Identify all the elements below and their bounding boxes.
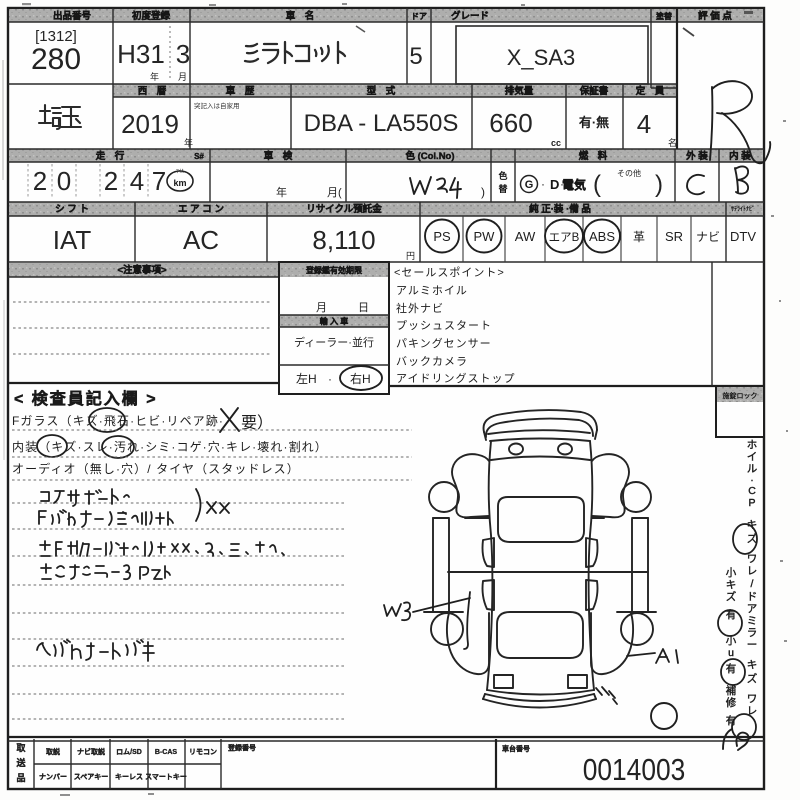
svg-text:4: 4 <box>130 166 144 196</box>
svg-text:ズ: ズ <box>747 672 758 685</box>
svg-text:日: 日 <box>358 302 369 314</box>
svg-text:車台番号: 車台番号 <box>502 744 530 753</box>
svg-text:0014003: 0014003 <box>583 753 686 787</box>
svg-text:ド: ド <box>747 591 758 603</box>
svg-text:有: 有 <box>726 714 737 727</box>
svg-text:有: 有 <box>726 662 737 675</box>
svg-text:名: 名 <box>668 137 677 148</box>
svg-text:キ: キ <box>726 579 737 591</box>
svg-text:): ) <box>481 185 485 199</box>
svg-text:品: 品 <box>16 773 25 783</box>
svg-text:ズ: ズ <box>726 590 737 603</box>
svg-text:純 正·装 ·備 品: 純 正·装 ·備 品 <box>529 203 591 215</box>
svg-text:PS: PS <box>433 229 451 244</box>
svg-text:有·無: 有·無 <box>579 115 609 130</box>
svg-text:突記入は自家用: 突記入は自家用 <box>194 101 240 110</box>
svg-text:要）: 要） <box>241 414 273 432</box>
svg-text:型 式: 型 式 <box>367 85 396 97</box>
svg-text:AC: AC <box>183 225 219 255</box>
svg-text:補: 補 <box>726 684 737 697</box>
svg-text:出品番号: 出品番号 <box>53 10 92 22</box>
svg-text:アルミホイル: アルミホイル <box>396 284 468 297</box>
svg-text:パキングセンサー: パキングセンサー <box>396 336 492 350</box>
svg-text:右H: 右H <box>350 371 371 386</box>
svg-text:車 検: 車 検 <box>264 150 293 162</box>
svg-text:8,110: 8,110 <box>312 225 375 255</box>
svg-text:4: 4 <box>637 109 651 139</box>
svg-text:キ: キ <box>747 659 758 671</box>
svg-text:ラ: ラ <box>747 627 758 639</box>
svg-text:X_SA3: X_SA3 <box>507 45 576 70</box>
svg-text:ワ: ワ <box>747 693 758 705</box>
svg-text:登録番号: 登録番号 <box>227 743 256 752</box>
svg-text:送: 送 <box>15 757 26 768</box>
svg-text:バックカメラ: バックカメラ <box>396 355 468 368</box>
svg-text:0: 0 <box>57 166 71 196</box>
svg-text:PW: PW <box>474 229 496 244</box>
svg-text:修: 修 <box>726 696 737 709</box>
svg-text:ナビ: ナビ <box>696 230 720 244</box>
svg-text:スマートキー: スマートキー <box>145 773 187 781</box>
svg-text:円: 円 <box>406 251 415 261</box>
svg-text:キーレス: キーレス <box>115 773 143 781</box>
svg-text:S#: S# <box>194 152 204 161</box>
svg-text:2: 2 <box>104 166 118 196</box>
svg-text:ﾏｲﾙ: ﾏｲﾙ <box>176 168 185 175</box>
svg-text:輸 入 車: 輸 入 車 <box>320 316 348 326</box>
svg-text:取: 取 <box>16 743 26 753</box>
svg-text:月(: 月( <box>327 187 342 199</box>
svg-text:施錠ロック: 施錠ロック <box>723 391 758 400</box>
svg-text:グレード: グレード <box>451 10 489 22</box>
svg-text:280: 280 <box>31 43 81 76</box>
svg-text:保証書: 保証書 <box>579 85 609 97</box>
svg-text:スペアキー: スペアキー <box>74 773 109 781</box>
svg-text:7: 7 <box>152 166 166 196</box>
svg-text:その他: その他 <box>617 168 641 178</box>
svg-text:km: km <box>173 178 186 188</box>
svg-text:ミ: ミ <box>747 615 758 627</box>
svg-text:月: 月 <box>316 302 327 314</box>
svg-text:IAT: IAT <box>53 225 92 255</box>
svg-text:ナンバー: ナンバー <box>39 773 67 781</box>
svg-text:ディーラー·並行: ディーラー·並行 <box>294 335 374 349</box>
svg-text:ABS: ABS <box>589 229 615 244</box>
svg-text:年: 年 <box>276 185 287 199</box>
svg-text:cc: cc <box>551 138 561 148</box>
svg-text:P: P <box>748 497 755 509</box>
svg-text:DTV: DTV <box>730 229 756 244</box>
svg-text:(: ( <box>593 171 601 198</box>
svg-text:·: · <box>328 372 332 386</box>
svg-text:アイドリングストップ: アイドリングストップ <box>396 371 515 385</box>
svg-text:小: 小 <box>726 567 737 579</box>
svg-text:C: C <box>748 485 756 497</box>
svg-text:プッシュスタート: プッシュスタート <box>396 319 492 332</box>
svg-text:<注意事項>: <注意事項> <box>117 264 167 276</box>
svg-text:評 価 点: 評 価 点 <box>698 10 732 22</box>
svg-text:エアB: エアB <box>549 232 580 244</box>
svg-text:3: 3 <box>176 39 190 69</box>
svg-text:オーディオ（無し·穴）/ タイヤ（スタッドレス）: オーディオ（無し·穴）/ タイヤ（スタッドレス） <box>12 461 300 476</box>
svg-text:社外ナビ: 社外ナビ <box>396 301 444 315</box>
svg-text:外 装: 外 装 <box>685 150 708 162</box>
svg-text:ドア: ドア <box>411 12 427 21</box>
svg-text:色: 色 <box>498 170 507 181</box>
svg-text:5: 5 <box>409 43 422 70</box>
svg-text:走 行: 走 行 <box>95 150 125 162</box>
svg-text:レ: レ <box>747 565 758 577</box>
svg-text:G: G <box>525 179 534 191</box>
svg-text:年: 年 <box>150 71 159 82</box>
svg-text:<セールスポイント>: <セールスポイント> <box>394 266 505 279</box>
svg-text:排気量: 排気量 <box>505 85 534 97</box>
svg-text:660: 660 <box>489 108 532 138</box>
svg-text:DBA - LA550S: DBA - LA550S <box>304 110 459 137</box>
svg-text:登録鑑有効期限: 登録鑑有効期限 <box>305 265 362 275</box>
svg-text:替: 替 <box>498 183 508 194</box>
svg-text:ー: ー <box>747 639 758 651</box>
svg-text:< 検査員記入欄 >: < 検査員記入欄 > <box>14 389 158 408</box>
svg-text:車 歴: 車 歴 <box>226 85 255 97</box>
svg-text:西 暦: 西 暦 <box>138 86 167 97</box>
svg-text:ナビ取説: ナビ取説 <box>77 747 105 756</box>
svg-text:H31: H31 <box>117 39 165 69</box>
svg-text:内 装: 内 装 <box>729 150 751 162</box>
svg-text:D: D <box>550 177 559 192</box>
svg-text:左H: 左H <box>296 371 317 386</box>
svg-text:リモコン: リモコン <box>189 748 217 756</box>
svg-text:塗替: 塗替 <box>656 11 672 21</box>
svg-text:SR: SR <box>665 229 683 244</box>
svg-text:B-CAS: B-CAS <box>155 749 177 756</box>
svg-text:革: 革 <box>633 230 645 244</box>
svg-text:色 (Col.No): 色 (Col.No) <box>405 150 454 162</box>
svg-text:エ ア コ ン: エ ア コ ン <box>178 204 224 215</box>
svg-text:AW: AW <box>515 229 536 244</box>
svg-text:u: u <box>728 647 734 659</box>
svg-text:2019: 2019 <box>121 109 179 139</box>
svg-text:2: 2 <box>33 166 47 196</box>
svg-text:イ: イ <box>747 451 758 463</box>
svg-text:定 員: 定 員 <box>635 85 665 97</box>
svg-text:ロム/SD: ロム/SD <box>116 748 142 756</box>
svg-text:取説: 取説 <box>46 747 60 756</box>
svg-text:ｻﾃﾗｲﾄﾅﾋﾞ: ｻﾃﾗｲﾄﾅﾋﾞ <box>731 205 755 213</box>
svg-text:内装（キズ·スレ·汚れ·シミ·コゲ·穴·キレ·壊れ·割れ）: 内装（キズ·スレ·汚れ·シミ·コゲ·穴·キレ·壊れ·割れ） <box>12 439 328 454</box>
svg-text:ア: ア <box>747 603 758 615</box>
svg-text:燃 料: 燃 料 <box>579 150 608 162</box>
svg-text:月: 月 <box>178 72 187 82</box>
svg-text:初度登録: 初度登録 <box>132 10 171 22</box>
svg-text:シ フ ト: シ フ ト <box>55 204 89 215</box>
svg-text:·: · <box>541 177 545 191</box>
svg-text:): ) <box>655 171 663 198</box>
svg-text:年: 年 <box>184 137 193 148</box>
svg-text:Fガラス（キズ·飛石·ヒビ·リペア跡·: Fガラス（キズ·飛石·ヒビ·リペア跡· <box>12 413 224 428</box>
svg-text:/: / <box>751 578 754 590</box>
svg-text:電気: 電気 <box>562 177 586 192</box>
svg-text:ホ: ホ <box>747 439 758 451</box>
svg-text:ワ: ワ <box>747 553 758 565</box>
svg-text:リサイクル預託金: リサイクル預託金 <box>306 203 382 215</box>
svg-text:車 名: 車 名 <box>286 10 315 22</box>
